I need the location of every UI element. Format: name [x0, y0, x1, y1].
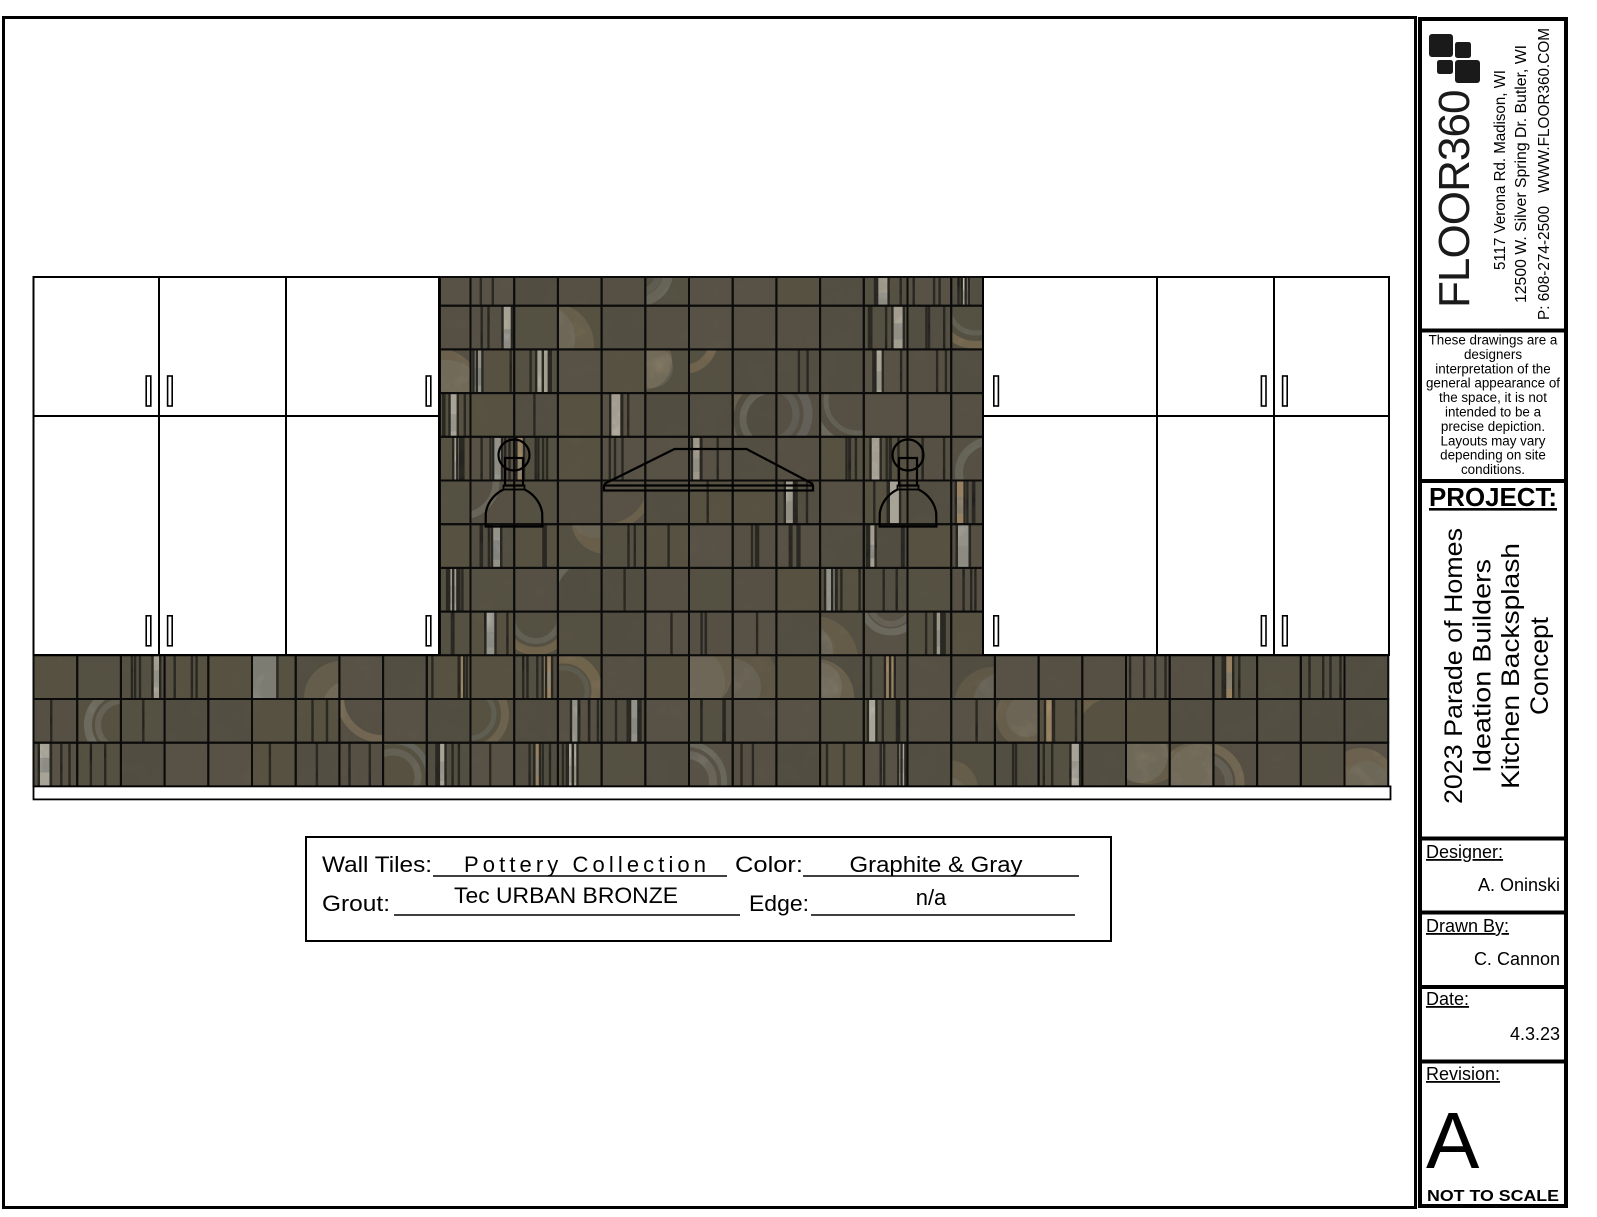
svg-text:Designer:: Designer:: [1426, 842, 1503, 862]
svg-text:4.3.23: 4.3.23: [1510, 1024, 1560, 1044]
svg-text:n/a: n/a: [916, 885, 947, 910]
svg-text:Edge:: Edge:: [749, 891, 809, 916]
svg-text:PROJECT:: PROJECT:: [1429, 482, 1557, 512]
svg-text:Grout:: Grout:: [322, 891, 390, 916]
svg-text:designers: designers: [1464, 347, 1522, 362]
svg-text:These drawings are a: These drawings are a: [1429, 333, 1558, 348]
svg-text:interpretation of the: interpretation of the: [1435, 361, 1550, 376]
svg-text:Pottery Collection: Pottery Collection: [464, 852, 706, 877]
svg-text:intended to be a: intended to be a: [1445, 405, 1542, 420]
svg-text:Tec URBAN BRONZE: Tec URBAN BRONZE: [454, 883, 678, 908]
svg-text:A: A: [1426, 1096, 1480, 1185]
svg-text:Ideation Builders: Ideation Builders: [1469, 559, 1497, 773]
svg-text:conditions.: conditions.: [1461, 462, 1525, 477]
svg-text:2023 Parade of Homes: 2023 Parade of Homes: [1440, 528, 1468, 804]
svg-text:Color:: Color:: [735, 852, 803, 877]
svg-text:depending on site: depending on site: [1440, 448, 1546, 463]
svg-text:Concept: Concept: [1526, 617, 1554, 715]
svg-text:Graphite & Gray: Graphite & Gray: [850, 852, 1023, 877]
svg-text:Drawn By:: Drawn By:: [1426, 916, 1509, 936]
svg-text:Date:: Date:: [1426, 989, 1469, 1009]
svg-text:the space, it is not: the space, it is not: [1439, 390, 1547, 405]
svg-text:Layouts may vary: Layouts may vary: [1441, 433, 1546, 448]
svg-text:FLOOR360: FLOOR360: [1430, 89, 1479, 308]
svg-text:Wall Tiles:: Wall Tiles:: [322, 852, 432, 877]
svg-text:Revision:: Revision:: [1426, 1064, 1500, 1084]
svg-text:A. Oninski: A. Oninski: [1478, 875, 1560, 895]
svg-text:12500 W. Silver Spring Dr. But: 12500 W. Silver Spring Dr. Butler, WI: [1513, 45, 1530, 303]
svg-text:Kitchen Backsplash: Kitchen Backsplash: [1497, 543, 1525, 789]
svg-text:precise depiction.: precise depiction.: [1441, 419, 1545, 434]
svg-text:NOT TO SCALE: NOT TO SCALE: [1427, 1188, 1559, 1205]
svg-text:5117 Verona Rd. Madison, WI: 5117 Verona Rd. Madison, WI: [1492, 70, 1509, 270]
svg-text:P: 608-274-2500 WWW.FLOOR360: P: 608-274-2500 WWW.FLOOR360.COM: [1536, 28, 1553, 320]
svg-text:C. Cannon: C. Cannon: [1474, 949, 1560, 969]
svg-text:general appearance of: general appearance of: [1426, 376, 1560, 391]
